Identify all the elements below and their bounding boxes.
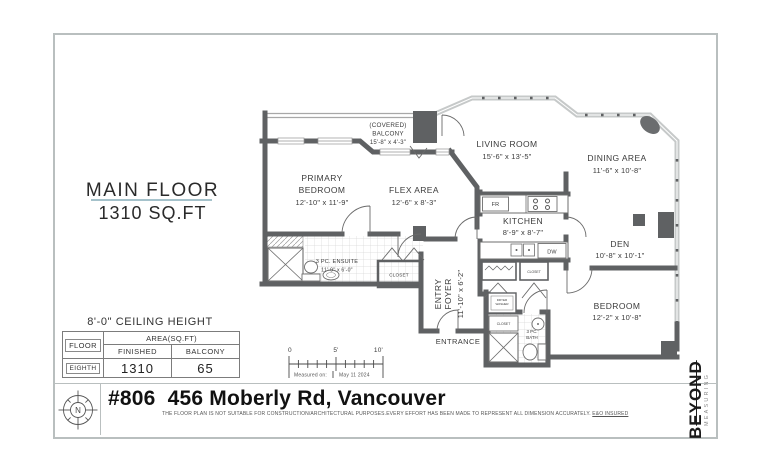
den-column	[633, 214, 645, 226]
dishwasher-label: DW	[547, 250, 557, 256]
finished-header: FINISHED	[104, 345, 172, 358]
den-label: DEN	[610, 239, 629, 249]
compass-box-divider	[100, 383, 101, 435]
compass-north-label: N	[75, 406, 81, 415]
flex-wall-stub	[413, 226, 426, 241]
brand-initial: B	[686, 426, 705, 439]
balcony-railing	[265, 114, 416, 118]
ensuite-label: 3 PC. ENSUITE	[316, 259, 358, 265]
flex-area-label: FLEX AREA	[389, 185, 439, 195]
floor-header-cell: FLOOR	[63, 332, 103, 359]
brand-logo: BEYOND MEASURING	[682, 331, 716, 439]
area-table-values-column: AREA(SQ.FT) FINISHED BALCONY 1310 65	[104, 332, 239, 377]
foyer-label-2: FOYER	[443, 278, 453, 309]
kitchen-closet-label: CLOSET	[527, 270, 541, 274]
living-room-dims: 15'-6" x 13'-5"	[482, 152, 531, 161]
area-table-floor-column: FLOOR EIGHTH	[63, 332, 104, 377]
finished-value: 1310	[104, 359, 172, 377]
balcony-label-2: BALCONY	[372, 131, 404, 138]
bath-label-2: BATH	[526, 335, 537, 340]
bath-label-1: 3 PC.	[527, 329, 538, 334]
brand-wordmark: BEYOND	[688, 360, 704, 439]
entrance-label: ENTRANCE	[436, 337, 480, 346]
disclaimer-emphasis: E&O INSURED	[592, 411, 628, 417]
foyer-closet-label: CLOSET	[389, 273, 409, 278]
north-compass: N	[58, 390, 98, 430]
area-values-row: 1310 65	[104, 359, 239, 377]
washer-label: WASHER	[495, 302, 509, 306]
area-table: FLOOR EIGHTH AREA(SQ.FT) FINISHED BALCON…	[62, 331, 240, 378]
fridge-label: FR	[492, 202, 500, 208]
brand-tagline: MEASURING	[704, 373, 710, 426]
ceiling-height-label: 8'-0" CEILING HEIGHT	[62, 316, 238, 328]
room-labels: (COVERED) BALCONY 15'-8" x 4'-3" PRIMARY…	[296, 122, 647, 346]
balcony-dims: 15'-8" x 4'-3"	[370, 140, 406, 146]
address-title: #806 456 Moberly Rd, Vancouver	[108, 387, 446, 411]
foyer-label-1: ENTRY	[433, 279, 443, 310]
kitchen-dims: 8'-9" x 8'-7"	[503, 228, 544, 237]
ensuite-vanity	[302, 274, 320, 281]
main-floor-underline	[91, 199, 212, 201]
area-header: AREA(SQ.FT)	[104, 332, 239, 345]
disclaimer-text: THE FLOOR PLAN IS NOT SUITABLE FOR CONST…	[162, 411, 702, 417]
bedroom-corner-block	[661, 341, 677, 357]
disclaimer-main: THE FLOOR PLAN IS NOT SUITABLE FOR CONST…	[162, 411, 592, 417]
balcony-value: 65	[172, 359, 239, 377]
balcony-label-1: (COVERED)	[369, 122, 406, 129]
dining-area-dims: 11'-6" x 10'-8"	[593, 166, 642, 175]
bath-closet-label: CLOSET	[497, 322, 511, 326]
dining-area-label: DINING AREA	[587, 153, 646, 163]
living-room-label: LIVING ROOM	[476, 139, 537, 149]
flex-area-dims: 12'-6" x 8'-3"	[392, 198, 437, 207]
balcony-divider-wall	[413, 111, 437, 143]
den-dims: 10'-8" x 10'-1"	[595, 251, 644, 260]
hanger-rail	[485, 266, 513, 270]
bath-toilet-tank	[538, 344, 546, 360]
floor-value: EIGHTH	[66, 363, 101, 374]
foyer-dims: 11'-10" x 6'-2"	[456, 270, 465, 319]
ensuite-hatch-strip	[267, 236, 303, 247]
bedroom-dims: 12'-2" x 10'-8"	[592, 313, 641, 322]
primary-bedroom-label-1: PRIMARY	[301, 173, 342, 183]
bedroom-label: BEDROOM	[594, 301, 641, 311]
balcony-header: BALCONY	[172, 345, 239, 358]
bath-toilet	[523, 344, 537, 360]
floor-header: FLOOR	[65, 339, 101, 352]
floor-plan-page: { "header": { "floor_label": "MAIN FLOOR…	[0, 0, 770, 450]
footer-divider	[53, 383, 716, 384]
primary-bedroom-label-2: BEDROOM	[299, 185, 346, 195]
floor-plan-drawing: (COVERED) BALCONY 15'-8" x 4'-3" PRIMARY…	[230, 84, 700, 386]
brand-rest: EYOND	[686, 360, 705, 425]
kitchen-label: KITCHEN	[503, 216, 543, 226]
area-subheaders: FINISHED BALCONY	[104, 345, 239, 359]
primary-bedroom-dims: 12'-10" x 11'-9"	[296, 198, 349, 207]
door-swings	[342, 115, 592, 331]
den-wall-block	[658, 212, 674, 238]
main-floor-area: 1310 SQ.FT	[75, 203, 230, 224]
floor-value-cell: EIGHTH	[63, 359, 103, 377]
ensuite-dims: 11'-9" x 6'-0"	[321, 268, 352, 274]
